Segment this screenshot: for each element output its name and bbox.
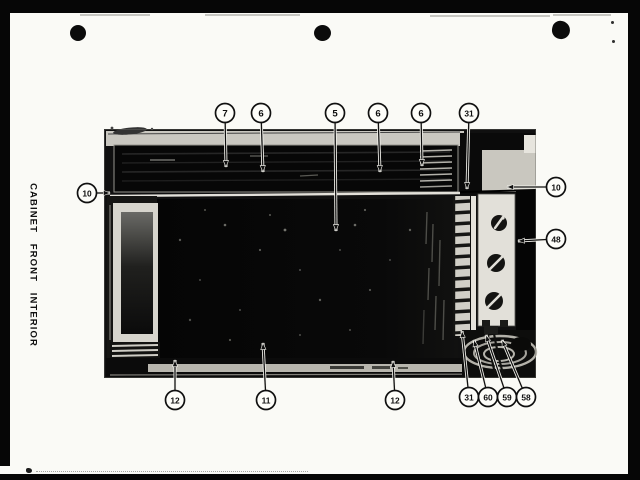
control-knob	[485, 292, 503, 310]
capillary-ladder-strip	[453, 196, 476, 336]
front-grille	[114, 145, 458, 192]
callout-number: 10	[82, 188, 92, 198]
callout-number: 31	[464, 392, 474, 402]
callout-number: 5	[332, 108, 338, 119]
callout-number: 7	[222, 108, 227, 119]
callout-number: 6	[375, 108, 380, 119]
callout-number: 60	[483, 392, 493, 402]
scanned-manual-page: CABINET FRONT INTERIOR	[0, 0, 640, 480]
callout-number: 12	[390, 395, 400, 405]
control-knob	[487, 254, 505, 272]
callout-number: 12	[170, 395, 180, 405]
callout-number: 6	[418, 108, 423, 119]
callout-number: 6	[258, 108, 263, 119]
callout-number: 59	[502, 392, 512, 402]
control-knob	[491, 215, 507, 231]
cabinet-photo	[104, 126, 536, 378]
callout-number: 11	[262, 395, 271, 405]
callout-number: 58	[521, 392, 531, 402]
callout-number: 48	[551, 234, 561, 244]
cabinet-front-interior-figure: 765663110104812111231605958	[0, 0, 640, 480]
side-channel-left	[107, 196, 160, 366]
coil-opening	[156, 199, 458, 361]
control-panel	[478, 194, 515, 327]
callout-number: 31	[464, 108, 474, 118]
callout-number: 10	[551, 182, 561, 192]
right-stile	[516, 190, 536, 338]
